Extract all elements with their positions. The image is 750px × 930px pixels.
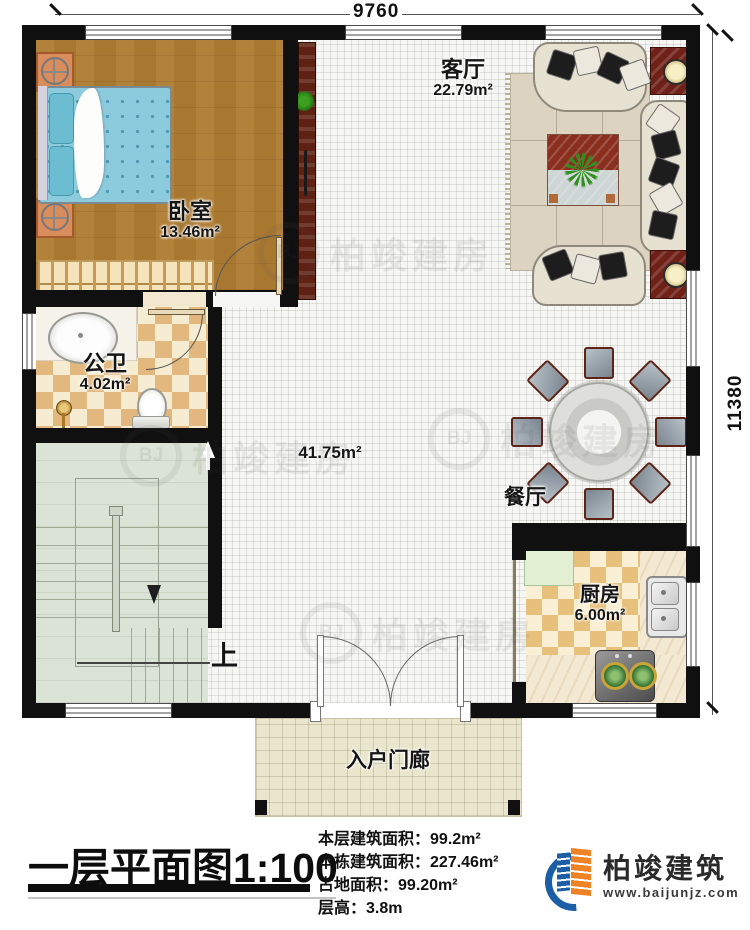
- title-underline: [28, 884, 310, 892]
- wall-kitchen-top: [512, 523, 700, 551]
- wall-bath-stair: [22, 428, 222, 443]
- dimension-width: 9760: [350, 1, 402, 23]
- plant-icon: [564, 152, 600, 188]
- living-room-label: 客厅 22.79m²: [408, 58, 518, 99]
- stove-burner: [601, 662, 629, 690]
- stair-railing: [112, 512, 120, 632]
- bed-blanket: [74, 88, 104, 198]
- dining-table: [549, 382, 649, 482]
- porch-pillar-left: [255, 800, 267, 815]
- window-living-top-2: [545, 25, 662, 40]
- kitchen-cabinet: [524, 548, 574, 586]
- kitchen-label: 厨房 6.00m²: [558, 585, 642, 624]
- stove-knob: [628, 654, 632, 658]
- tv-cabinet: [298, 42, 316, 300]
- sink-drain: [661, 616, 666, 621]
- dining-room-label: 餐厅: [490, 487, 560, 510]
- logo-building-orange-icon: [571, 848, 591, 896]
- stat-line: 层高：3.8m: [318, 897, 499, 920]
- stove-burner: [629, 662, 657, 690]
- brand-website[interactable]: www.baijunjz.com: [603, 885, 739, 900]
- wall-kitchen-left-stub: [512, 551, 526, 560]
- dining-chair: [584, 347, 614, 379]
- bedroom-door-leaf[interactable]: [276, 237, 282, 295]
- stair-direction-arrow-icon: [147, 585, 161, 604]
- bed-headboard: [38, 86, 48, 200]
- brand-logo[interactable]: 柏竣建筑 www.baijunjz.com: [545, 845, 735, 920]
- stove-knob: [615, 654, 619, 658]
- wall-left: [22, 25, 36, 718]
- bathroom-door-opening: [143, 292, 206, 307]
- window-kitchen-right: [686, 582, 700, 667]
- sink-drain: [78, 333, 83, 338]
- pillow: [49, 93, 74, 144]
- entrance-door-leaf-left[interactable]: [317, 635, 324, 707]
- brand-name: 柏竣建筑: [603, 847, 727, 887]
- dimension-height: 11380: [725, 363, 747, 443]
- pillow: [648, 210, 679, 241]
- bathroom-label: 公卫 4.02m²: [58, 352, 152, 393]
- window-dining-right-1: [686, 270, 700, 367]
- lamp-icon: [41, 203, 69, 231]
- tv-icon: [304, 150, 307, 196]
- dimension-line-right: [712, 30, 713, 715]
- up-arrow-icon: [201, 441, 215, 458]
- pillow: [598, 251, 628, 281]
- bedroom-label: 卧室 13.46m²: [138, 200, 242, 241]
- window-bedroom-top: [85, 25, 232, 40]
- wall-bedroom-living: [283, 25, 298, 307]
- stat-line: 本层建筑面积：99.2m²: [318, 828, 499, 851]
- porch-pillar-right: [508, 800, 520, 815]
- title-underline-thin: [28, 897, 336, 899]
- pillow: [49, 146, 74, 196]
- window-bathroom-left: [22, 313, 36, 370]
- wall-stair-hall: [208, 298, 222, 628]
- dining-chair: [655, 417, 687, 447]
- entrance-door-leaf-right[interactable]: [457, 635, 464, 707]
- dimension-tick: [721, 29, 734, 42]
- window-dining-right-2: [686, 455, 700, 547]
- floor-drain-stem: [62, 413, 65, 429]
- stair-railing-cap: [109, 506, 123, 516]
- window-stair-bottom: [65, 703, 172, 718]
- logo-building-blue-icon: [557, 852, 570, 891]
- kitchen-door-leaf[interactable]: [513, 560, 516, 682]
- stair-label-leader: [77, 662, 210, 664]
- stat-line: 占地面积：99.20m²: [318, 874, 499, 897]
- window-living-top-1: [345, 25, 462, 40]
- stairs-up-label: 上: [211, 642, 238, 671]
- hall-area-label: 41.75m²: [278, 444, 382, 462]
- sink-drain: [661, 590, 666, 595]
- bathroom-door-leaf[interactable]: [148, 309, 205, 315]
- coffee-table-foot: [606, 194, 615, 203]
- dining-chair: [511, 417, 543, 447]
- floor-plan-sheet: 9760 11380: [0, 0, 750, 930]
- wall-kitchen-left-lower: [512, 682, 526, 705]
- dining-chair: [584, 488, 614, 520]
- lamp-icon: [41, 57, 69, 85]
- build-stats: 本层建筑面积：99.2m² 本栋建筑面积：227.46m² 占地面积：99.20…: [318, 828, 499, 920]
- rug-fringe: [505, 73, 510, 269]
- porch-label: 入户门廊: [328, 750, 448, 773]
- window-kitchen-bottom: [572, 703, 657, 718]
- up-arrow-stem: [206, 458, 210, 470]
- stat-line: 本栋建筑面积：227.46m²: [318, 851, 499, 874]
- coffee-table-foot: [549, 194, 558, 203]
